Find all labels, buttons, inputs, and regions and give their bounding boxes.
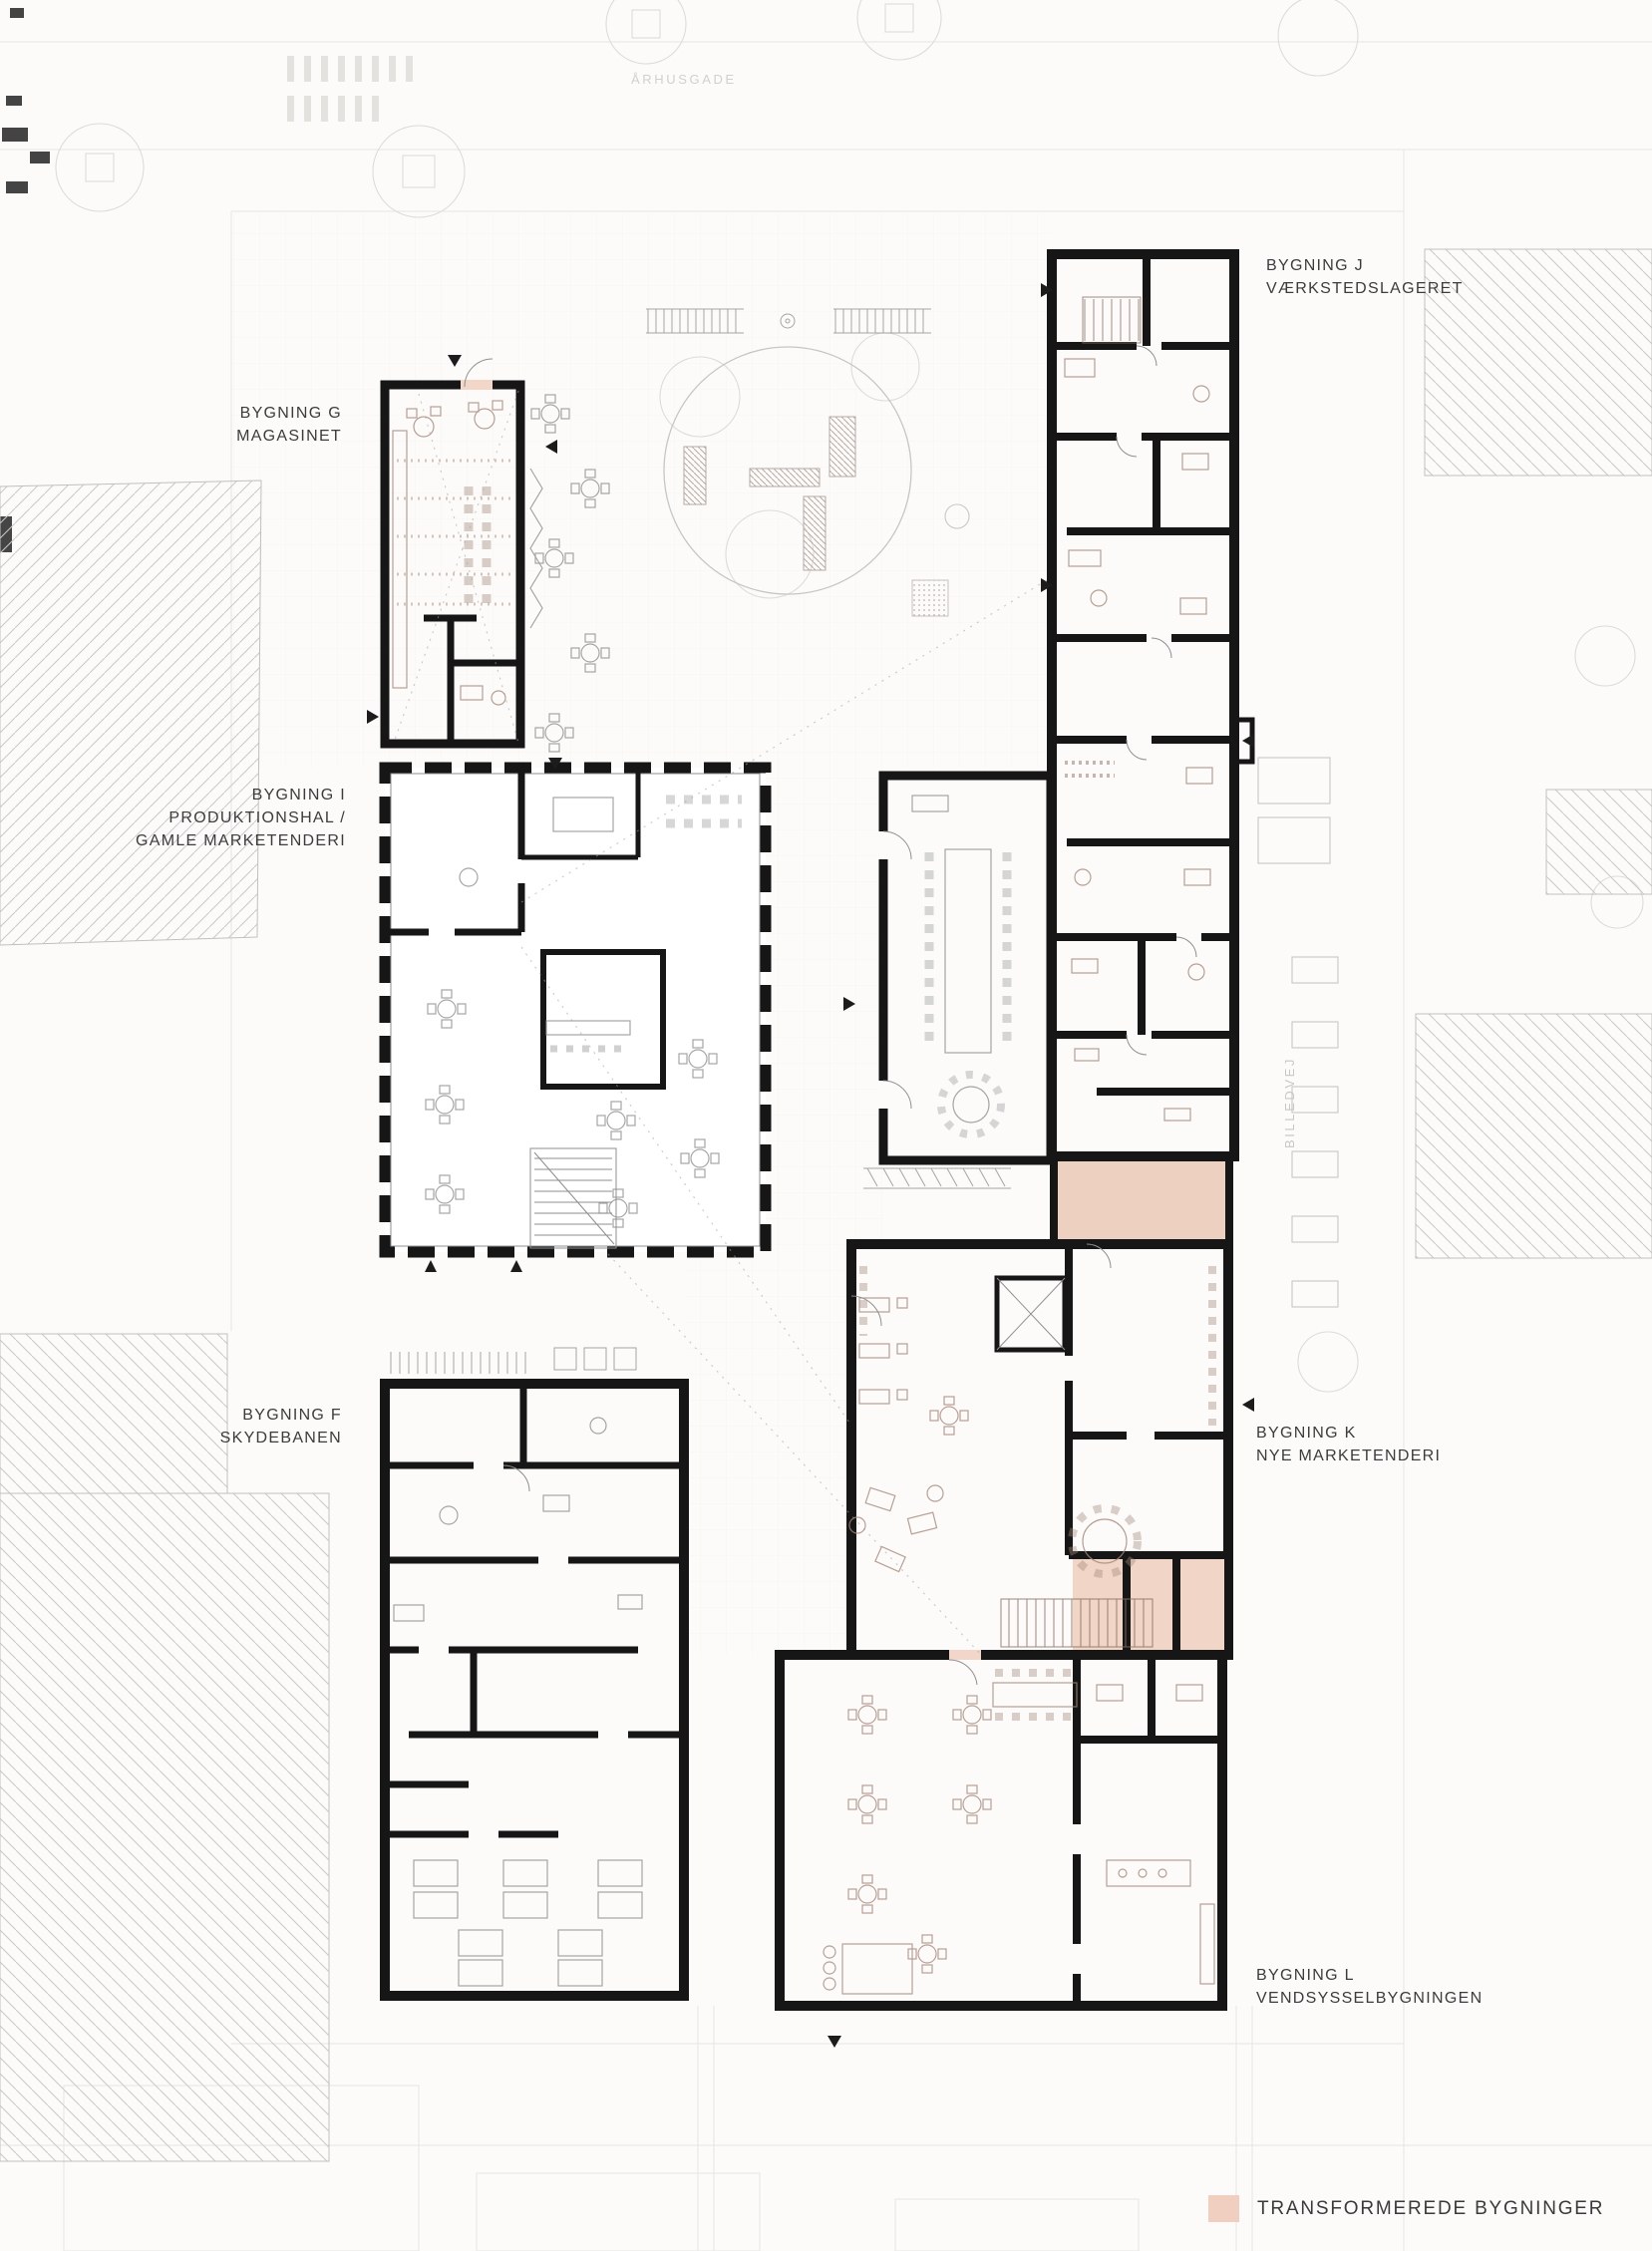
street-furniture-marks: [0, 8, 50, 552]
street-label-billedvej: BILLEDVEJ: [1282, 1057, 1297, 1148]
building-g-label-line2: MAGASINET: [236, 425, 342, 448]
building-j-label-line1: BYGNING J: [1266, 254, 1464, 277]
billedvej-planters: [1258, 758, 1338, 1307]
building-i-label-line1: BYGNING I: [136, 784, 346, 806]
legend-transformed-swatch: [1208, 2195, 1239, 2222]
site-plan-page: ÅRHUSGADE BILLEDVEJ BYGNING J VÆRKSTEDSL…: [0, 0, 1652, 2251]
building-f-label: BYGNING F SKYDEBANEN: [220, 1404, 342, 1449]
building-j-plan: [1052, 254, 1252, 1156]
building-i-label: BYGNING I PRODUKTIONSHAL / GAMLE MARKETE…: [136, 784, 346, 852]
building-k-plan: [849, 1244, 1228, 1655]
building-j-label-line2: VÆRKSTEDSLAGERET: [1266, 277, 1464, 300]
ramp-hatch: [863, 1168, 1011, 1188]
parking-stripes: [287, 56, 413, 122]
stair-building-j: [1083, 297, 1141, 343]
building-middle-plan: [863, 776, 1051, 1188]
legend-transformed-label: TRANSFORMEREDE BYGNINGER: [1257, 2198, 1604, 2220]
building-f-plan: [385, 1348, 684, 1996]
building-l-plan: [780, 1655, 1222, 2006]
building-l-label: BYGNING L VENDSYSSELBYGNINGEN: [1256, 1964, 1483, 2010]
building-g-label: BYGNING G MAGASINET: [236, 402, 342, 448]
building-f-label-line1: BYGNING F: [220, 1404, 342, 1427]
planters-building-f: [391, 1348, 636, 1374]
building-g-label-line1: BYGNING G: [236, 402, 342, 425]
neighbor-parcel-hatch-right-large: [1416, 1014, 1652, 1258]
neighbor-parcel-hatch-right-small: [1546, 790, 1652, 894]
legend: TRANSFORMEREDE BYGNINGER: [1208, 2195, 1604, 2222]
building-k-label-line1: BYGNING K: [1256, 1422, 1441, 1445]
site-plan-drawing: [0, 0, 1652, 2251]
building-i-label-line3: GAMLE MARKETENDERI: [136, 829, 346, 852]
building-l-label-line2: VENDSYSSELBYGNINGEN: [1256, 1987, 1483, 2010]
building-l-label-line1: BYGNING L: [1256, 1964, 1483, 1987]
building-i-plan: [385, 768, 766, 1252]
connector-strip: [1054, 1156, 1229, 1244]
neighbor-parcel-hatch-left: [0, 481, 261, 945]
stair-core-building-k: [997, 1278, 1065, 1350]
building-k-label-line2: NYE MARKETENDERI: [1256, 1445, 1441, 1467]
building-k-label: BYGNING K NYE MARKETENDERI: [1256, 1422, 1441, 1467]
street-label-arhusgade: ÅRHUSGADE: [631, 72, 737, 87]
building-j-label: BYGNING J VÆRKSTEDSLAGERET: [1266, 254, 1464, 300]
building-f-label-line2: SKYDEBANEN: [220, 1427, 342, 1449]
building-i-label-line2: PRODUKTIONSHAL /: [136, 806, 346, 829]
neighbor-parcel-hatch-bottom-left: [0, 1334, 329, 2161]
